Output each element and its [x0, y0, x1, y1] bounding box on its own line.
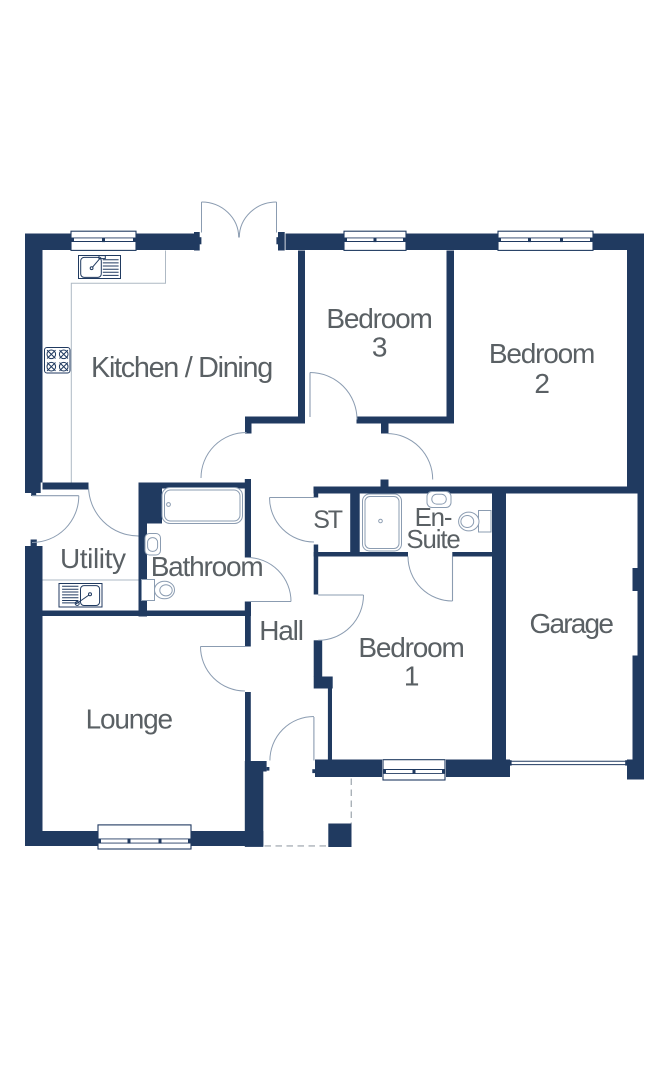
svg-text:3: 3 [372, 332, 387, 363]
svg-text:Suite: Suite [406, 526, 460, 554]
svg-text:Bedroom: Bedroom [326, 303, 431, 334]
svg-text:Bathroom: Bathroom [151, 551, 263, 582]
svg-text:2: 2 [534, 368, 549, 399]
svg-text:Hall: Hall [259, 615, 302, 646]
svg-text:Garage: Garage [530, 608, 614, 639]
svg-text:Utility: Utility [60, 543, 126, 574]
svg-text:1: 1 [404, 661, 419, 692]
svg-text:Bedroom: Bedroom [489, 338, 594, 369]
svg-text:Kitchen / Dining: Kitchen / Dining [91, 352, 272, 384]
svg-text:Lounge: Lounge [86, 704, 173, 735]
svg-text:ST: ST [313, 506, 342, 534]
svg-text:Bedroom: Bedroom [358, 632, 463, 663]
